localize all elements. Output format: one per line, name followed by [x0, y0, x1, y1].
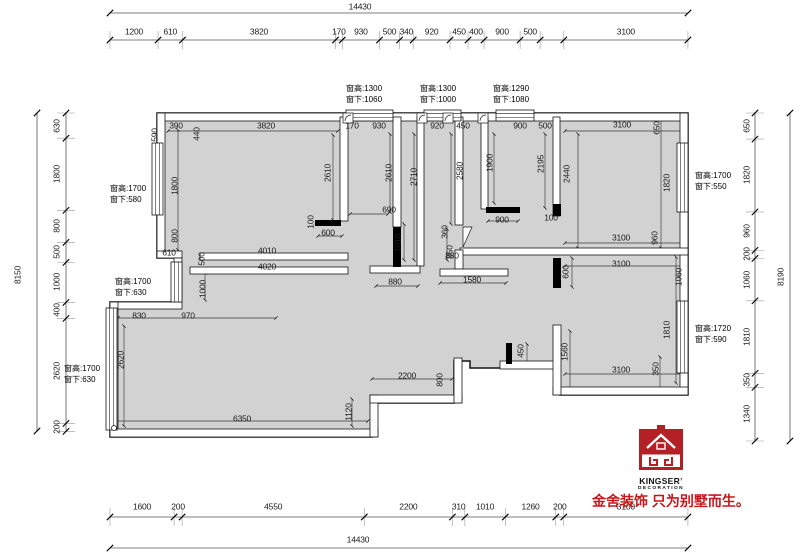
dim-label: 3100	[612, 234, 630, 243]
window-sill-text: 窗下:1060	[346, 94, 382, 105]
dim-label: 1010	[476, 503, 494, 512]
dim-label: 500	[198, 252, 207, 266]
dim-label: 3100	[617, 28, 635, 37]
dim-label: 1800	[171, 177, 180, 195]
window-symbol	[171, 262, 182, 302]
dim-label: 610	[162, 249, 176, 258]
dim-label: 1560	[561, 343, 570, 361]
dim-label: 900	[495, 216, 509, 225]
dim-label: 920	[430, 122, 444, 131]
dim-label: 1600	[133, 503, 151, 512]
beam	[486, 207, 520, 213]
dim-label: 450	[517, 344, 526, 358]
dim-label: 1580	[463, 276, 481, 285]
dim-label: 2620	[53, 362, 62, 380]
window-height-text: 窗高:1700	[110, 183, 146, 194]
logo-apostrophe: ’	[680, 476, 683, 486]
dim-total-label: 14430	[349, 3, 372, 12]
window-note: 窗高:1700窗下:630	[64, 363, 100, 385]
dim-label: 4550	[264, 503, 282, 512]
dim-total-label: 8150	[14, 266, 23, 284]
dim-label: 630	[53, 119, 62, 133]
dim-label: 2200	[398, 372, 416, 381]
dim-label: 600	[321, 229, 335, 238]
window-height-text: 窗高:1290	[493, 83, 529, 94]
dim-label: 650	[743, 119, 752, 133]
window-height-text: 窗高:1700	[695, 170, 731, 181]
dim-label: 3100	[612, 366, 630, 375]
dim-label: 400	[469, 28, 483, 37]
wall	[110, 429, 378, 437]
dim-label: 390	[169, 122, 183, 131]
dim-label: 350	[743, 374, 752, 388]
window-sill-text: 窗下:630	[64, 374, 100, 385]
dim-label: 3820	[257, 122, 275, 131]
dim-label: 2610	[385, 164, 394, 182]
dim-label: 450	[456, 122, 470, 131]
dim-label: 310	[452, 503, 466, 512]
dim-label: 170	[332, 28, 346, 37]
dim-label: 2620	[117, 351, 126, 369]
dim-label: 2440	[563, 165, 572, 183]
dim-label: 690	[382, 206, 396, 215]
dim-label: 880	[445, 252, 459, 261]
dim-label: 6350	[233, 415, 251, 424]
window-note: 窗高:1720窗下:590	[695, 323, 731, 345]
window-sill-text: 窗下:580	[110, 194, 146, 205]
dim-label: 1010	[394, 234, 403, 252]
dim-label: 500	[538, 122, 552, 131]
kingser-emblem-icon	[638, 424, 684, 470]
dim-label: 4010	[258, 247, 276, 256]
window-height-text: 窗高:1700	[115, 276, 151, 287]
dim-label: 3100	[613, 121, 631, 130]
logo: KINGSER’ DECORATION	[634, 424, 688, 491]
dim-label: 1820	[663, 174, 672, 192]
dim-label: 3100	[612, 260, 630, 269]
dim-label: 920	[425, 28, 439, 37]
window-height-text: 窗高:1300	[420, 83, 456, 94]
dim-label: 1000	[199, 280, 208, 298]
dim-label: 1810	[663, 321, 672, 339]
window-sill-text: 窗下:1000	[420, 94, 456, 105]
dim-label: 590	[151, 128, 160, 142]
dim-label: 960	[651, 231, 660, 245]
wall	[553, 387, 688, 395]
window-sill-text: 窗下:590	[695, 334, 731, 345]
beam	[506, 343, 512, 364]
dim-label: 200	[53, 421, 62, 435]
door-symbol	[443, 113, 453, 123]
dim-label: 500	[523, 28, 537, 37]
dim-label: 200	[171, 503, 185, 512]
dim-label: 500	[53, 246, 62, 260]
dim-label: 1820	[743, 166, 752, 184]
dim-label: 1900	[486, 154, 495, 172]
dim-label: 930	[354, 28, 368, 37]
dim-label: 610	[163, 28, 177, 37]
dim-label: 650	[653, 121, 662, 135]
dim-label: 200	[553, 503, 567, 512]
window-symbol	[496, 110, 534, 121]
dim-label: 400	[53, 304, 62, 318]
dim-label: 340	[400, 28, 414, 37]
window-note: 窗高:1700窗下:550	[695, 170, 731, 192]
dim-label: 960	[743, 224, 752, 238]
dim-label: 100	[544, 214, 558, 223]
dim-label: 440	[193, 127, 202, 141]
entry-circle	[112, 426, 117, 431]
wall	[110, 302, 182, 309]
wall	[460, 248, 688, 255]
dim-label: 1060	[675, 268, 684, 286]
dim-label: 1800	[53, 165, 62, 183]
dim-label: 2580	[456, 162, 465, 180]
dim-label: 800	[53, 220, 62, 234]
dim-label: 800	[171, 229, 180, 243]
dim-label: 2200	[399, 503, 417, 512]
window-note: 窗高:1700窗下:630	[115, 276, 151, 298]
dim-label: 1120	[345, 403, 354, 420]
door-symbol	[417, 113, 427, 123]
floorplan-canvas: 1200610382017093050034092045040090050031…	[0, 0, 800, 556]
dim-label: 200	[743, 248, 752, 262]
dim-label: 2710	[410, 168, 419, 186]
window-height-text: 窗高:1720	[695, 323, 731, 334]
wall	[370, 395, 462, 403]
window-height-text: 窗高:1300	[346, 83, 382, 94]
wall	[454, 358, 462, 403]
dim-label: 350	[652, 362, 661, 376]
dim-label: 970	[181, 312, 195, 321]
dim-label: 500	[383, 28, 397, 37]
window-symbol	[677, 143, 688, 212]
dim-label: 450	[452, 28, 466, 37]
dim-label: 600	[562, 265, 571, 279]
window-sill-text: 窗下:630	[115, 287, 151, 298]
dim-label: 930	[372, 122, 386, 131]
door-symbol	[478, 113, 488, 123]
dim-label: 3820	[250, 28, 268, 37]
dim-label: 170	[345, 122, 359, 131]
wall	[340, 117, 348, 221]
window-note: 窗高:1700窗下:580	[110, 183, 146, 205]
window-symbol	[152, 143, 163, 215]
wall	[553, 117, 560, 216]
dim-label: 2195	[537, 155, 546, 173]
dim-label: 1200	[125, 28, 143, 37]
dim-label: 880	[388, 278, 402, 287]
brand-slogan: 金舍装饰 只为别墅而生。	[592, 491, 750, 511]
dim-label: 2610	[324, 164, 333, 182]
dim-label: 1000	[53, 273, 62, 291]
window-sill-text: 窗下:1080	[493, 94, 529, 105]
window-note: 窗高:1300窗下:1000	[420, 83, 456, 105]
dim-label: 900	[495, 28, 509, 37]
dim-label: 800	[436, 373, 445, 387]
wall	[370, 266, 420, 273]
window-symbol	[677, 301, 688, 373]
dim-label: 900	[513, 122, 527, 131]
dim-label: 1810	[743, 328, 752, 346]
dim-label: 4020	[258, 263, 276, 272]
dim-label: 100	[307, 215, 316, 229]
dim-label: 1060	[743, 271, 752, 289]
window-sill-text: 窗下:550	[695, 181, 731, 192]
dim-label: 360	[441, 225, 450, 239]
wall	[417, 117, 424, 266]
dim-label: 830	[132, 312, 146, 321]
dim-label: 1260	[521, 503, 539, 512]
window-symbol	[424, 110, 461, 121]
dim-label: 1340	[743, 405, 752, 423]
logo-brand-text: KINGSER’	[634, 476, 688, 486]
dim-total-label: 8190	[777, 268, 786, 286]
window-height-text: 窗高:1700	[64, 363, 100, 374]
dim-total-label: 14430	[347, 536, 370, 545]
window-note: 窗高:1300窗下:1060	[346, 83, 382, 105]
window-note: 窗高:1290窗下:1080	[493, 83, 529, 105]
beam	[315, 220, 341, 226]
